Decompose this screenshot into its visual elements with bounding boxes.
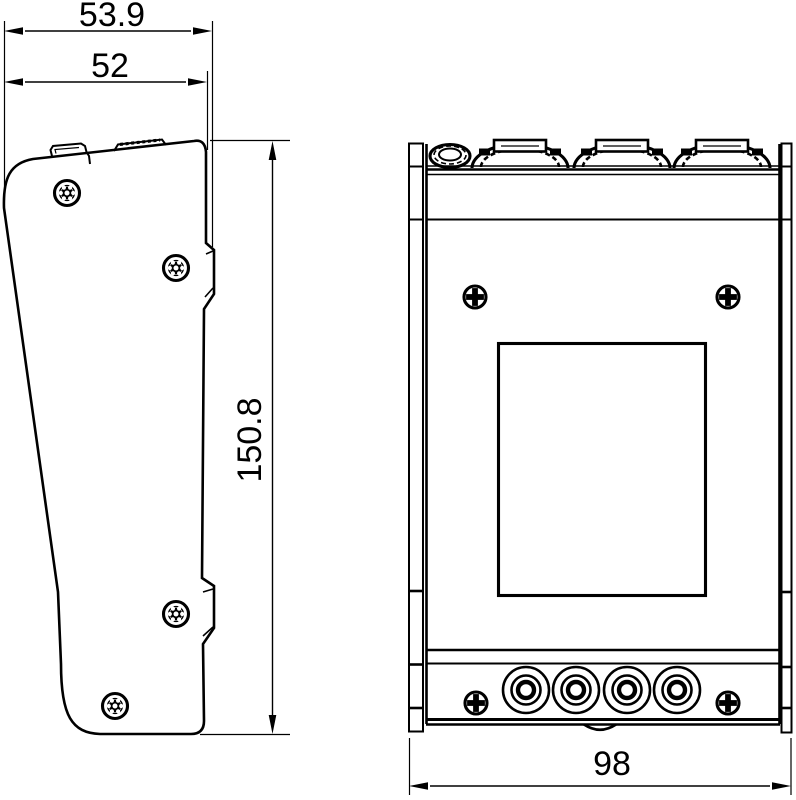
torx-screw [103,694,128,719]
mounting-latch-top [205,251,213,297]
display-window [499,344,706,596]
banana-jack [503,667,549,713]
dim-side-width-inner: 52 [4,47,208,150]
mounting-latch-bottom [203,589,213,636]
dim-side-width-outer: 53.9 [4,0,213,247]
banana-jack [553,667,599,713]
banana-jack [604,667,650,713]
phillips-screw [717,286,739,308]
torx-screw [164,602,189,627]
phillips-screw [465,692,487,714]
din-rail-right [781,144,793,733]
side-view [4,140,214,735]
xlr-connector [472,140,568,168]
rotary-knob [430,145,470,168]
top-connector-strip [427,140,779,168]
dim-front-width: 98 [409,738,791,795]
dim-label-98: 98 [593,745,631,783]
dim-label-52: 52 [91,47,129,85]
side-body-outline [4,141,214,734]
xlr-connector [574,140,670,168]
din-rail-left [408,144,424,732]
torx-screw [55,181,80,206]
phillips-screw [464,286,486,308]
front-view [408,140,793,733]
xlr-connector [674,140,770,168]
drawing-canvas: 53.9 52 150.8 [0,0,796,800]
dim-height: 150.8 [200,141,290,735]
dim-label-53-9: 53.9 [79,0,145,34]
technical-drawing: 53.9 52 150.8 [0,0,796,800]
dim-label-150-8: 150.8 [231,397,269,482]
torx-screw [164,256,189,281]
phillips-screw [717,692,739,714]
banana-jack [654,667,700,713]
